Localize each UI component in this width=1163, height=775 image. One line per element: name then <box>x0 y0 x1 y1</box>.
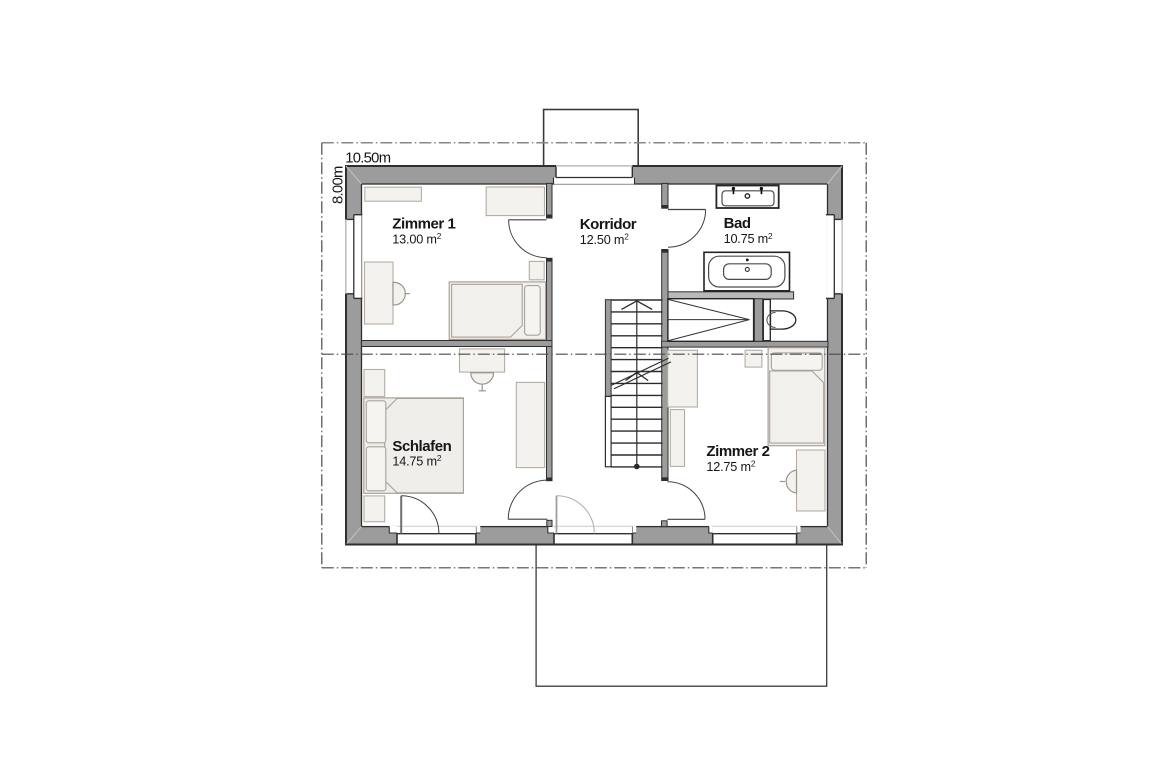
svg-text:Zimmer 1: Zimmer 1 <box>392 215 455 232</box>
svg-text:13.00 m2: 13.00 m2 <box>392 231 441 246</box>
svg-text:Schlafen: Schlafen <box>392 438 451 455</box>
svg-text:12.50 m2: 12.50 m2 <box>580 231 629 246</box>
svg-text:Zimmer 2: Zimmer 2 <box>706 443 769 460</box>
svg-text:12.75 m2: 12.75 m2 <box>706 458 755 473</box>
svg-text:8.00m: 8.00m <box>330 166 346 204</box>
svg-text:14.75 m2: 14.75 m2 <box>392 453 441 468</box>
svg-text:10.75 m2: 10.75 m2 <box>724 231 773 246</box>
svg-text:Bad: Bad <box>724 215 751 232</box>
svg-text:10.50m: 10.50m <box>345 150 391 166</box>
